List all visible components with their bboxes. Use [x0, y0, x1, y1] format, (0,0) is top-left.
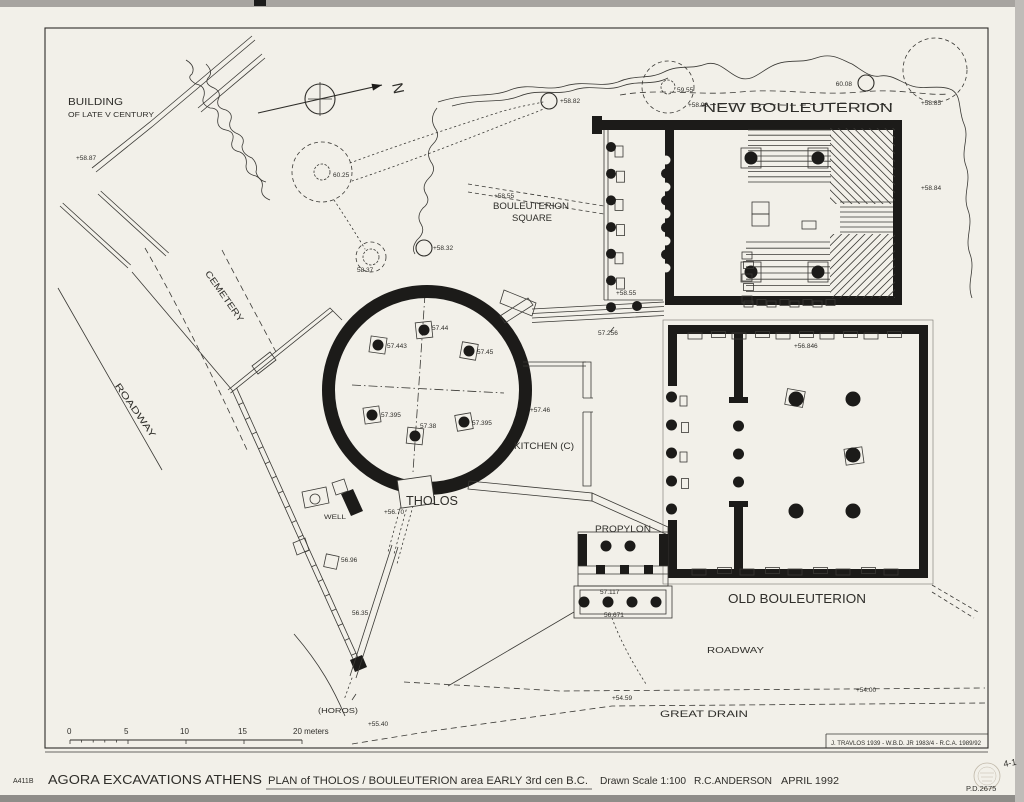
elevation-label: +57.46 — [530, 407, 550, 414]
caption-author: R.C.ANDERSON — [694, 775, 772, 787]
scanned-plan-sheet: N — [0, 0, 1024, 802]
elevation-label: 57.256 — [598, 330, 618, 337]
scale-tick-label: 10 — [180, 727, 189, 736]
elevation-label: +58.55 — [494, 193, 514, 200]
old-bouleuterion-label: OLD BOULEUTERION — [728, 592, 866, 606]
caption-subtitle: PLAN of THOLOS / BOULEUTERION area EARLY… — [268, 775, 588, 787]
kitchen-label: KITCHEN (C) — [514, 441, 574, 452]
elevation-label: +54.00 — [856, 687, 876, 694]
new-bouleuterion-label: NEW BOULEUTERION — [703, 100, 893, 115]
elevation-label: 56.35 — [352, 610, 369, 617]
well-label: WELL — [324, 514, 346, 521]
elevation-label: 57.395 — [472, 420, 492, 427]
elevation-label: 57.45 — [477, 349, 494, 356]
scale-tick-label: 5 — [124, 727, 129, 736]
sheet-code: A411B — [13, 778, 34, 785]
elevation-label: 56.671 — [604, 612, 624, 619]
tholos-label: THOLOS — [406, 494, 458, 508]
scale-tick-label: 0 — [67, 727, 72, 736]
propylon-label: PROPYLON — [595, 524, 651, 535]
square-label-2: SQUARE — [512, 213, 552, 224]
elevation-label: +58.82 — [560, 98, 580, 105]
elevation-label: 57.38 — [420, 423, 437, 430]
elevation-label: +56.846 — [794, 343, 818, 350]
square-label: BOULEUTERION — [493, 201, 569, 212]
elevation-label: +58.55 — [616, 290, 636, 297]
elevation-label: 58.37 — [357, 267, 374, 274]
elevation-label: +58.90 — [688, 102, 708, 109]
plan-canvas: N — [0, 0, 1024, 802]
elevation-label: 57.117 — [600, 589, 620, 596]
credits-line: J. TRAVLOS 1939 - W.B.D. JR 1983/4 - R.C… — [831, 740, 981, 747]
elevation-label: 57.44 — [432, 325, 449, 332]
caption-scale: Drawn Scale 1:100 — [600, 775, 686, 787]
elevation-label: +55.40 — [368, 721, 388, 728]
scale-tick-label: 15 — [238, 727, 247, 736]
elevation-label: +58.85 — [921, 100, 941, 107]
elevation-label: +58.84 — [921, 185, 941, 192]
elevation-label: 56.96 — [341, 557, 358, 564]
elevation-label: 60.25 — [333, 172, 350, 179]
horos-label: (HOROS) — [318, 706, 359, 715]
elevation-label: +54.59 — [612, 695, 632, 702]
elevation-label: +58.32 — [433, 245, 453, 252]
caption-title: AGORA EXCAVATIONS ATHENS — [48, 773, 262, 787]
building-label-2: OF LATE V CENTURY — [68, 110, 154, 119]
pd-number: P.D.2675 — [966, 784, 996, 793]
elevation-label: +56.70 — [384, 509, 404, 516]
elevation-label: 57.395 — [381, 412, 401, 419]
caption-date: APRIL 1992 — [781, 775, 839, 787]
building-label: BUILDING — [68, 96, 123, 108]
elevation-label: 59.55 — [677, 87, 694, 94]
scan-mark — [254, 0, 266, 6]
great-drain-label: GREAT DRAIN — [660, 709, 748, 719]
scan-edge-bottom — [0, 795, 1024, 802]
elevation-label: 60.08 — [836, 81, 853, 88]
scan-edge-top — [0, 0, 1024, 7]
elevation-label: 57.443 — [387, 343, 407, 350]
scan-edge-right — [1015, 0, 1024, 802]
elevation-label: +58.87 — [76, 155, 96, 162]
scale-tick-label: 20 meters — [293, 727, 329, 736]
roadway-south-label: ROADWAY — [707, 645, 764, 655]
